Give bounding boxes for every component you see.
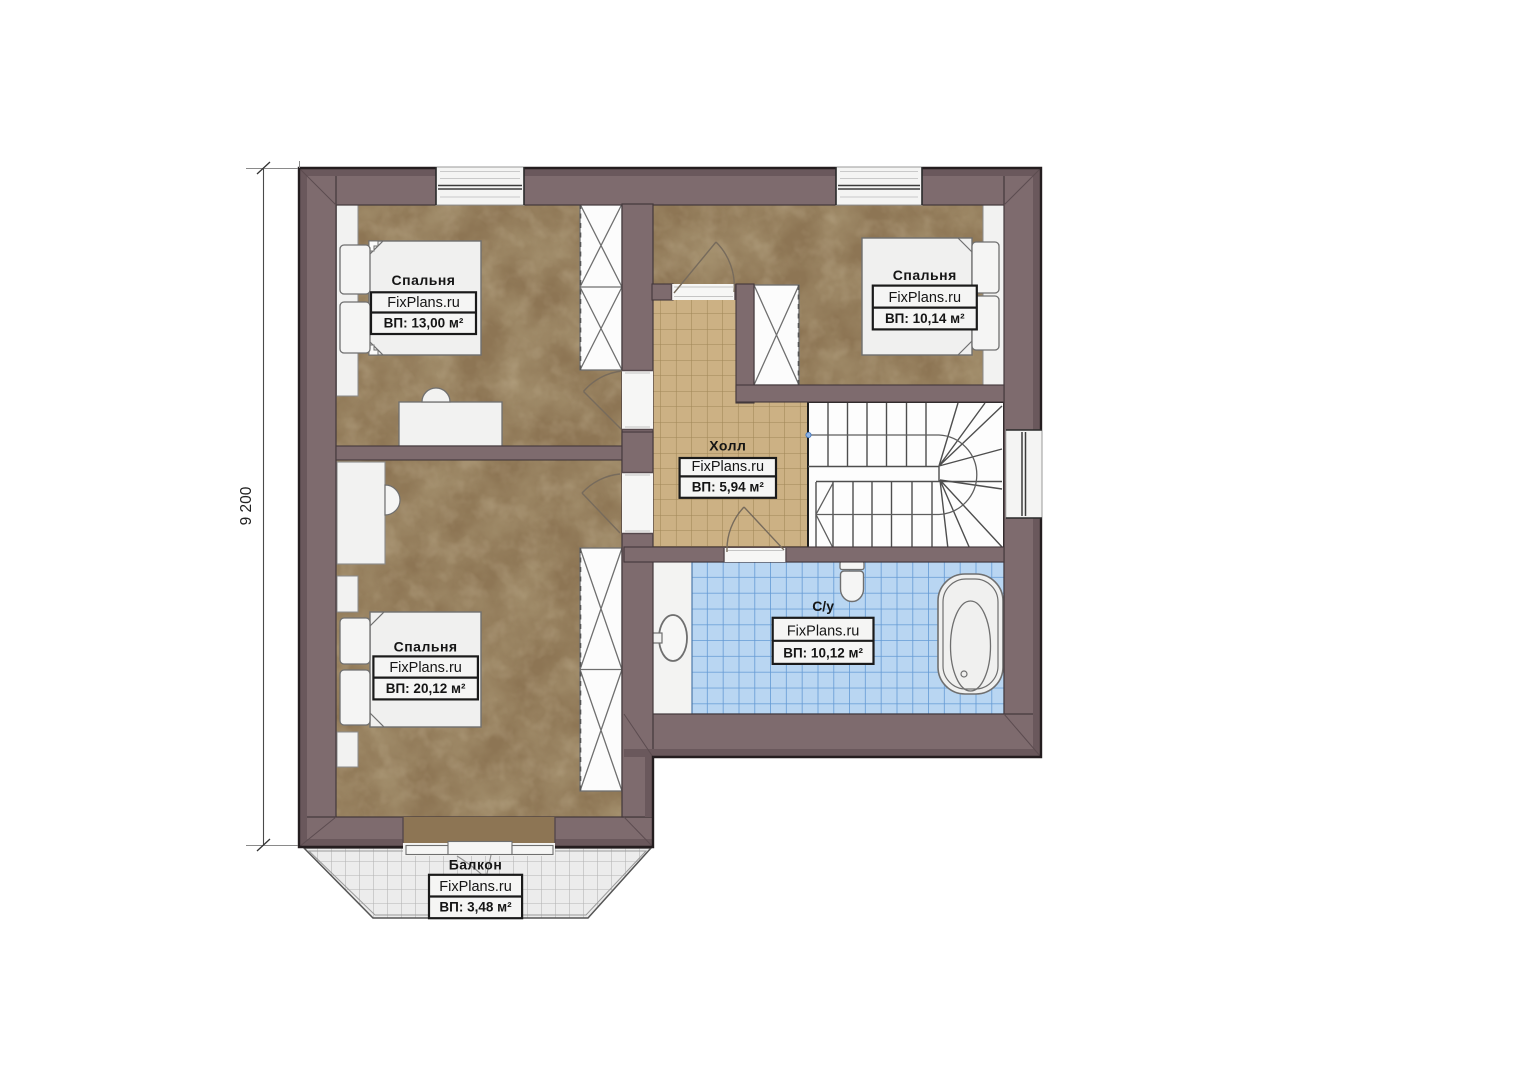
svg-text:ВП: 20,12 м²: ВП: 20,12 м²: [386, 681, 466, 696]
svg-text:9 200: 9 200: [238, 486, 255, 525]
svg-text:Спальня: Спальня: [893, 267, 957, 283]
svg-text:Спальня: Спальня: [392, 272, 456, 288]
svg-text:ВП: 3,48 м²: ВП: 3,48 м²: [439, 900, 512, 915]
svg-text:FixPlans.ru: FixPlans.ru: [389, 660, 462, 676]
svg-text:FixPlans.ru: FixPlans.ru: [439, 879, 512, 895]
svg-text:Холл: Холл: [709, 438, 746, 454]
svg-text:Балкон: Балкон: [449, 857, 503, 873]
svg-text:FixPlans.ru: FixPlans.ru: [692, 459, 765, 475]
svg-text:ВП: 10,12 м²: ВП: 10,12 м²: [783, 645, 863, 660]
svg-text:С/у: С/у: [812, 598, 834, 614]
svg-text:Спальня: Спальня: [394, 639, 458, 655]
svg-text:FixPlans.ru: FixPlans.ru: [787, 623, 860, 639]
svg-text:FixPlans.ru: FixPlans.ru: [387, 295, 460, 311]
svg-text:ВП: 10,14 м²: ВП: 10,14 м²: [885, 311, 965, 326]
svg-text:FixPlans.ru: FixPlans.ru: [889, 290, 962, 306]
svg-text:ВП: 5,94 м²: ВП: 5,94 м²: [692, 479, 765, 494]
svg-text:ВП: 13,00 м²: ВП: 13,00 м²: [384, 316, 464, 331]
